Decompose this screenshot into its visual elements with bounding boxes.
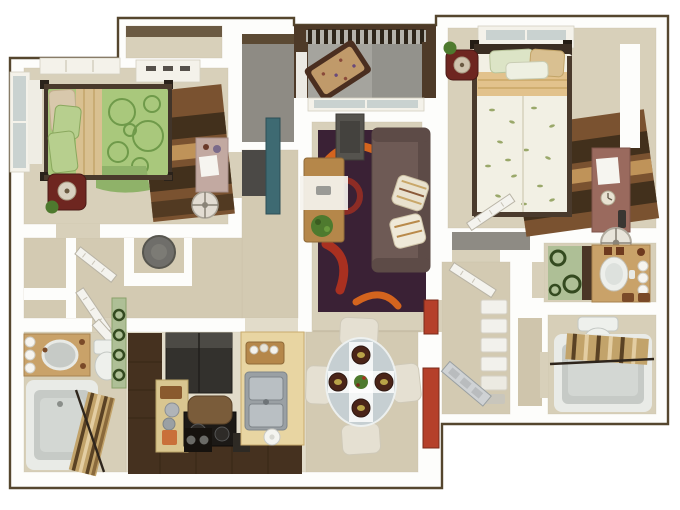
bathroom-2-vanity-room bbox=[548, 245, 650, 302]
hall-cabinet bbox=[242, 150, 266, 196]
coffee-table bbox=[300, 158, 348, 242]
centerpiece bbox=[354, 375, 368, 389]
tissue-box bbox=[162, 430, 177, 445]
floor-plan-render bbox=[0, 0, 680, 510]
plant bbox=[46, 201, 59, 214]
vanity-light bbox=[25, 337, 35, 347]
bed-bedroom2 bbox=[470, 40, 572, 217]
pot bbox=[163, 418, 175, 430]
bedroom1-closet-shelf bbox=[126, 26, 222, 37]
balcony-floor-shade bbox=[372, 44, 422, 98]
walkin-closet-floor bbox=[452, 232, 530, 250]
vanity-bathroom1 bbox=[24, 334, 90, 376]
vanity-side bbox=[582, 246, 592, 300]
vanity-sink bbox=[43, 341, 77, 369]
table-plant bbox=[311, 215, 333, 237]
knife-block bbox=[160, 386, 182, 399]
kitchen-island bbox=[241, 332, 304, 445]
sofa bbox=[372, 128, 430, 272]
paper bbox=[199, 155, 219, 177]
vanity-light bbox=[25, 350, 35, 360]
nightstand-bedroom1 bbox=[46, 174, 87, 214]
speaker-box bbox=[184, 428, 212, 452]
balcony-wall-right bbox=[422, 42, 436, 98]
pot bbox=[165, 403, 179, 417]
window-sill bbox=[28, 80, 42, 164]
desk-phone bbox=[618, 210, 626, 228]
desk-chair-bedroom1 bbox=[192, 192, 218, 218]
stool bbox=[622, 293, 634, 302]
teal-tall-cabinet bbox=[266, 118, 280, 214]
window-top bbox=[40, 58, 120, 74]
balcony bbox=[294, 25, 436, 102]
double-sink bbox=[245, 372, 287, 430]
bathroom2-door-gap bbox=[532, 262, 544, 298]
remote bbox=[316, 186, 331, 195]
faucet bbox=[629, 270, 635, 279]
sofa-arm bbox=[372, 258, 430, 272]
kitchen bbox=[128, 332, 304, 474]
cabinet-run-bottom bbox=[128, 442, 302, 474]
living-room bbox=[300, 114, 430, 312]
narrow-closet-floor bbox=[518, 318, 542, 406]
bedroom1-door-gap bbox=[56, 224, 100, 238]
sofa-arm bbox=[372, 128, 430, 142]
dresser bbox=[136, 60, 200, 82]
balcony-railing-slats bbox=[308, 29, 424, 45]
pillow-green bbox=[48, 131, 79, 174]
bedroom-2 bbox=[444, 26, 660, 258]
balcony-screen-door bbox=[296, 52, 307, 98]
dining-chair-bottom bbox=[341, 423, 381, 456]
roaster bbox=[188, 396, 232, 424]
nook-wall bbox=[124, 273, 192, 286]
stool bbox=[638, 293, 650, 302]
storage-closet-shelf bbox=[242, 34, 294, 44]
paper bbox=[596, 157, 620, 185]
green-curtain-strip bbox=[112, 298, 126, 388]
vanity-light bbox=[638, 261, 648, 271]
drain bbox=[57, 401, 63, 407]
closet-wall bbox=[24, 288, 66, 300]
desk-bedroom2 bbox=[592, 148, 630, 232]
tubroom-door-gap bbox=[540, 352, 548, 398]
faucet bbox=[263, 399, 269, 405]
vanity-light bbox=[638, 273, 648, 283]
sliding-glass-door bbox=[308, 98, 424, 111]
window-left bbox=[10, 72, 42, 172]
vanity-light bbox=[25, 363, 35, 373]
plant bbox=[444, 42, 457, 55]
wall-stub bbox=[620, 44, 640, 148]
pillow-lumbar bbox=[506, 61, 549, 79]
bed-rail-top bbox=[44, 84, 172, 89]
red-accent-upper bbox=[424, 300, 438, 334]
kitchen-opening bbox=[245, 318, 298, 332]
bedroom2-door-gap bbox=[452, 250, 500, 262]
front-door-red bbox=[423, 368, 439, 448]
floor-plan-canvas bbox=[0, 0, 680, 510]
folded-blanket bbox=[76, 86, 102, 178]
closet-wall bbox=[66, 238, 76, 318]
bed-rail bbox=[567, 56, 572, 216]
desk-bedroom1 bbox=[196, 138, 228, 192]
